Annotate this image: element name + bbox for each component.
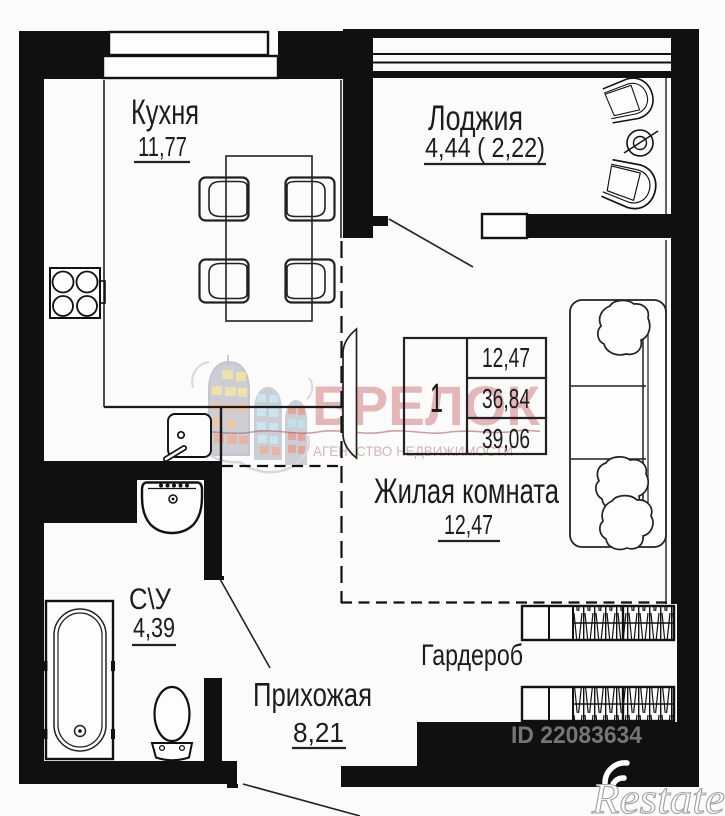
svg-text:Гардероб: Гардероб bbox=[421, 639, 523, 672]
svg-text:Жилая комната: Жилая комната bbox=[374, 472, 559, 511]
svg-text:8,21: 8,21 bbox=[293, 717, 344, 748]
svg-text:4,39: 4,39 bbox=[133, 612, 175, 643]
svg-text:12,47: 12,47 bbox=[444, 509, 493, 540]
svg-text:12,47: 12,47 bbox=[482, 342, 530, 373]
svg-text:Кухня: Кухня bbox=[131, 93, 199, 132]
svg-text:Restate: Restate bbox=[591, 776, 725, 816]
svg-text:36,84: 36,84 bbox=[482, 383, 530, 414]
svg-text:4,44 ( 2,22): 4,44 ( 2,22) bbox=[425, 132, 545, 163]
svg-text:11,77: 11,77 bbox=[138, 131, 187, 162]
svg-text:1: 1 bbox=[430, 375, 443, 421]
svg-text:ID 22083634: ID 22083634 bbox=[511, 722, 643, 749]
svg-text:39,06: 39,06 bbox=[482, 423, 530, 454]
svg-text:Прихожая: Прихожая bbox=[253, 676, 372, 713]
